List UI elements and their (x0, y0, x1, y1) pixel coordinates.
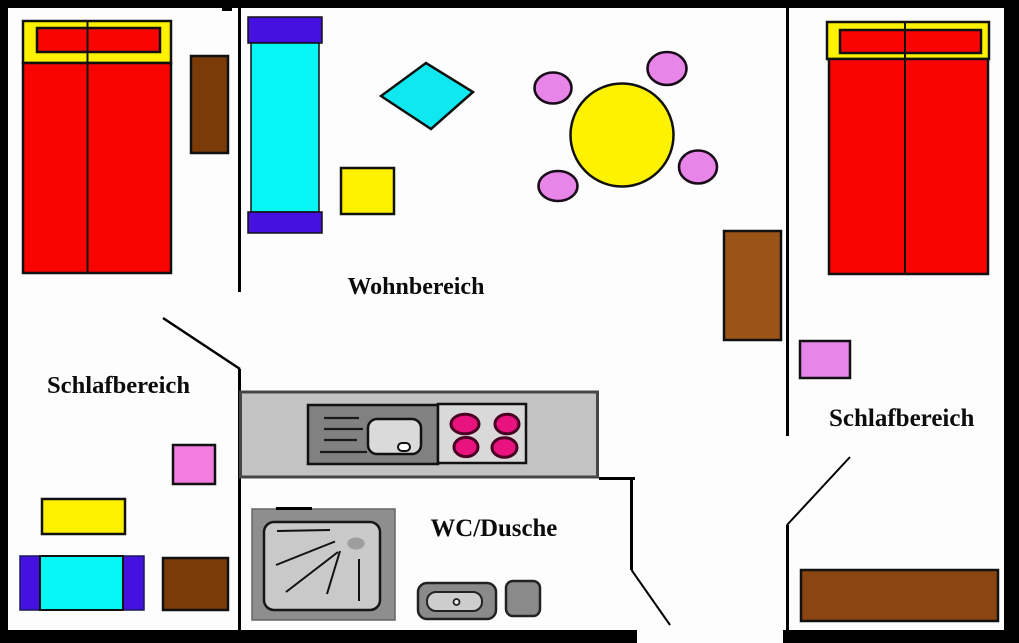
svg-text:Schlafbereich: Schlafbereich (829, 405, 974, 432)
svg-text:Wohnbereich: Wohnbereich (348, 274, 485, 300)
svg-text:WC/Dusche: WC/Dusche (431, 515, 558, 542)
svg-text:Schlafbereich: Schlafbereich (47, 372, 190, 399)
